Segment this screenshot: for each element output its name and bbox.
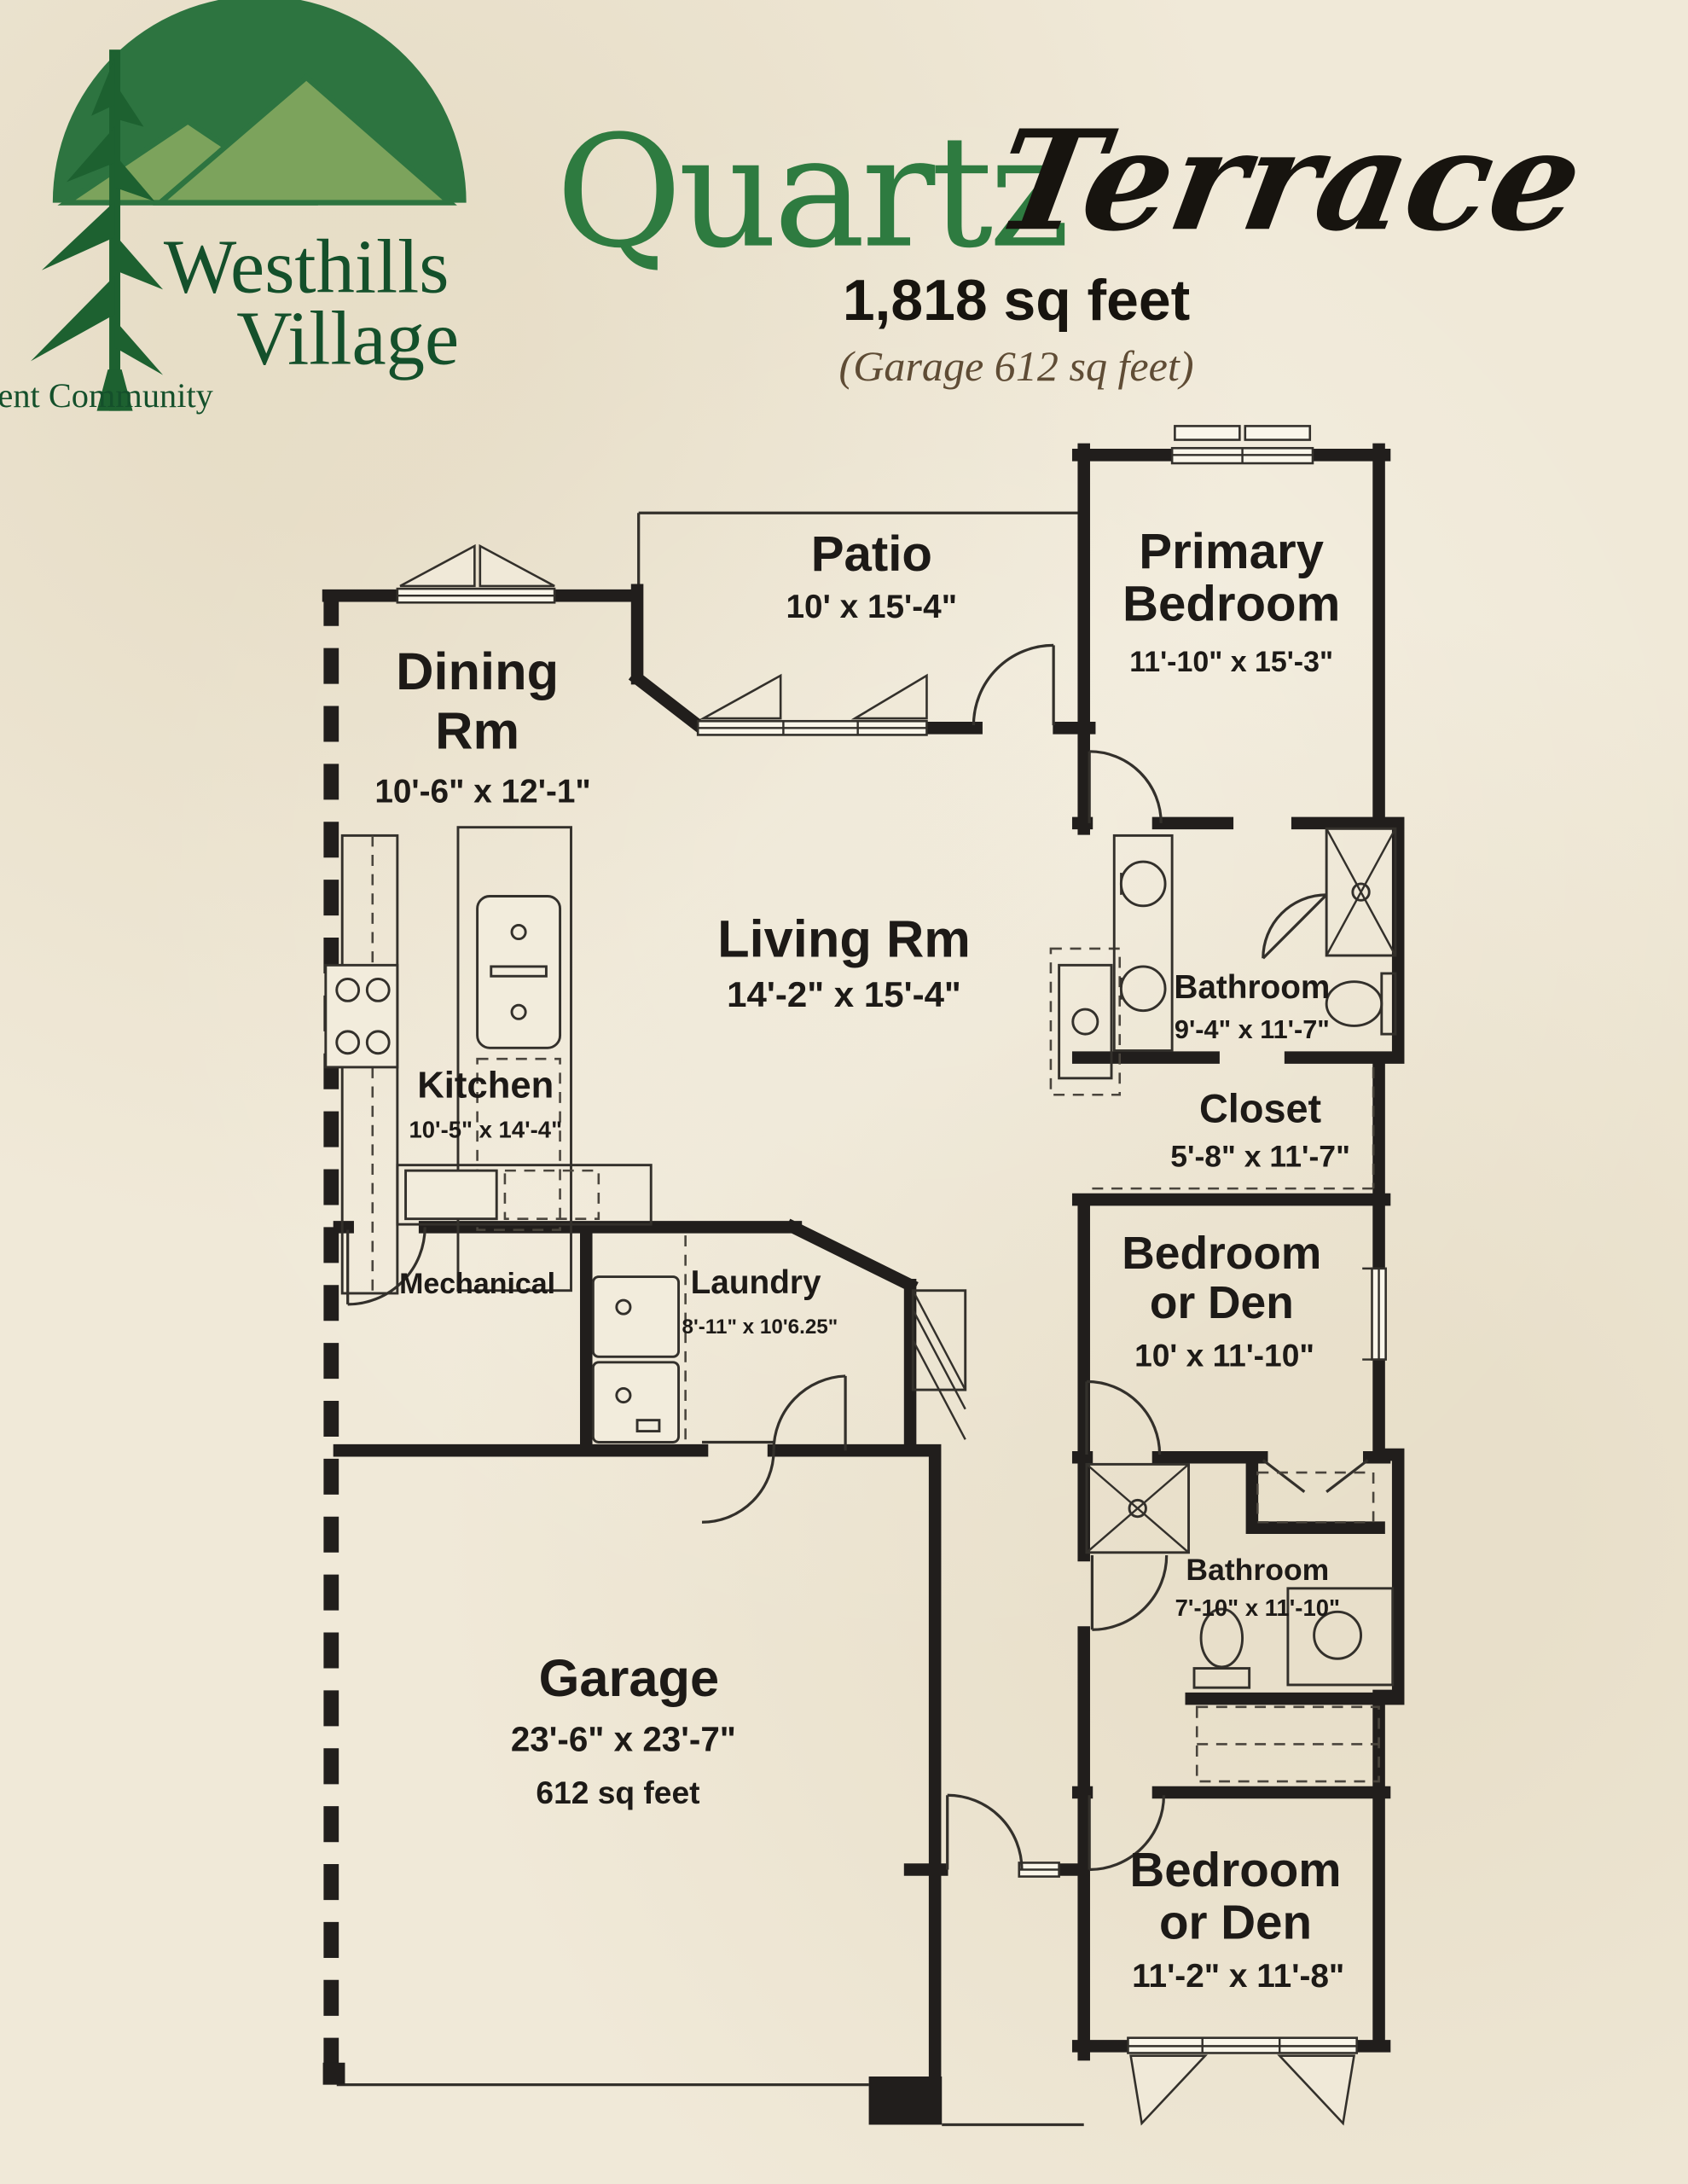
room-dims-patio: 10' x 15'-4" [786,589,958,625]
primary-bedroom-door [1089,752,1161,823]
room-dims-dining: 10'-6" x 12'-1" [374,774,590,810]
bedroom-den-1-window [1362,1269,1385,1360]
room-label-closet-primary: Closet [1199,1087,1322,1131]
closet-bifold-doors [1263,1461,1368,1492]
primary-shower-door [1263,895,1326,958]
brand-tagline: Retirement Community [0,376,214,415]
primary-bedroom-window [1172,426,1313,463]
room-area-garage: 612 sq feet [536,1774,699,1810]
room-label-mechanical: Mechanical [399,1268,555,1300]
oven-icon [406,1170,497,1219]
living-patio-window [698,676,926,735]
bedroom-den-1-door [1087,1381,1160,1455]
room-dims-primary: 11'-10" x 15'-3" [1129,646,1333,678]
linen-closet-shelves [1197,1707,1378,1781]
sink-icon [1121,967,1165,1011]
room-dims-garage: 23'-6" x 23'-7" [511,1720,736,1759]
room-dims-bedroom-den-1: 10' x 11'-10" [1134,1338,1314,1374]
room-label-bedroom-den-2b: or Den [1159,1895,1312,1949]
room-label-dining-1: Dining [396,642,559,701]
room-label-bedroom-den-1a: Bedroom [1122,1228,1321,1279]
room-label-laundry: Laundry [691,1264,821,1301]
laundry-door [774,1376,845,1450]
room-dims-bathroom-2: 7'-10" x 11'-10" [1175,1594,1340,1621]
front-door [948,1795,1022,1869]
total-sqft: 1,818 sq feet [843,269,1190,333]
room-label-bathroom-primary: Bathroom [1174,969,1330,1006]
room-label-living: Living Rm [717,910,971,969]
brand-name-line2: Village [236,295,459,381]
bathroom-2-door [1092,1555,1166,1629]
toilet-icon [1326,982,1382,1026]
garage-corner-stub [323,2063,345,2085]
kitchen-counters [326,828,651,1293]
floorplan-page: Westhills Village Retirement Community Q… [0,0,1688,2184]
sink-icon [1121,862,1165,906]
room-dims-living: 14'-2" x 15'-4" [727,974,961,1014]
room-label-garage: Garage [539,1649,720,1708]
fireplace-icon [1073,1009,1098,1034]
range-icon [326,965,397,1067]
garage-corner-step [869,2077,943,2125]
room-dims-bathroom-primary: 9'-4" x 11'-7" [1175,1014,1330,1044]
title-block: Quartz Terrace 1,818 sq feet (Garage 612… [556,100,1594,390]
room-dims-laundry: 8'-11" x 10'6.25" [682,1316,838,1339]
front-door-sidelight [1019,1862,1059,1876]
plan-title-script: Terrace [984,100,1593,262]
room-label-patio: Patio [811,526,932,582]
room-label-bedroom-den-2a: Bedroom [1129,1843,1341,1896]
bedroom-den-2-windows [1128,2038,1356,2123]
garage-sqft-note: (Garage 612 sq feet) [839,342,1194,390]
kitchen-sink-icon [478,897,560,1048]
dining-window [397,546,554,602]
fireplace-unit [1051,949,1120,1095]
room-label-bathroom-2: Bathroom [1186,1553,1329,1587]
room-dims-closet-primary: 5'-8" x 11'-7" [1170,1139,1350,1173]
room-label-bedroom-den-1b: or Den [1150,1278,1294,1328]
washer-icon [593,1277,678,1357]
laundry-fixtures [593,1235,685,1442]
patio-door [973,645,1053,725]
room-dims-kitchen: 10'-5" x 14'-4" [409,1116,562,1142]
westhills-village-logo: Westhills Village Retirement Community [0,0,467,415]
room-label-primary-1: Primary [1139,524,1324,579]
bedroom-1-closet [1257,1472,1373,1522]
room-dims-bedroom-den-2: 11'-2" x 11'-8" [1132,1958,1344,1995]
room-label-primary-2: Bedroom [1122,576,1340,631]
double-vanity [1114,835,1172,1050]
utility-chase [913,1291,965,1440]
room-label-kitchen: Kitchen [417,1065,554,1106]
room-label-dining-2: Rm [435,702,519,761]
dryer-icon [593,1362,678,1443]
garage-entry-door [702,1443,774,1523]
floorplan: Patio 10' x 15'-4" Primary Bedroom 11'-1… [323,426,1399,2124]
